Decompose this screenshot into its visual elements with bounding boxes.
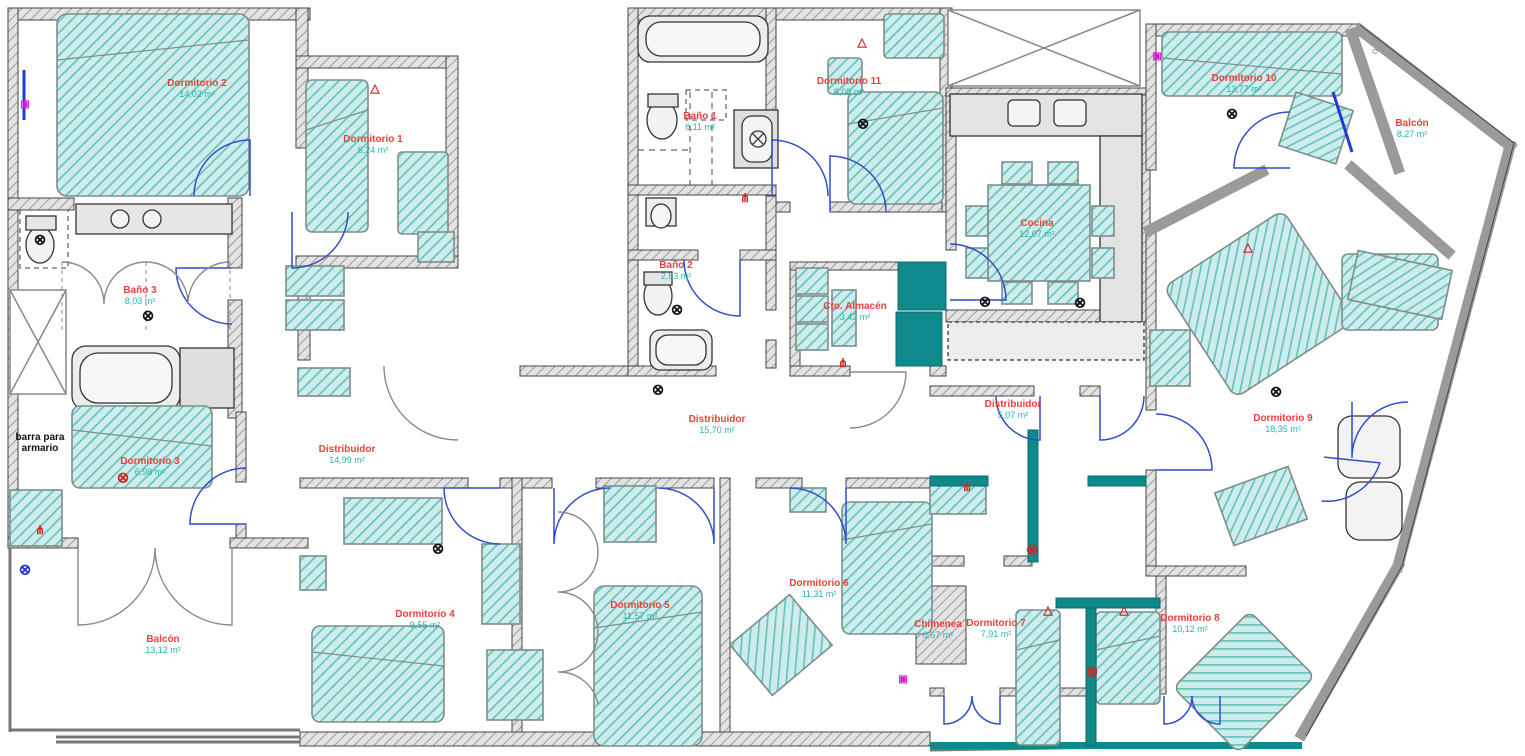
- floor-plan: Dormitorio 214,02 m²Dormitorio 16,24 m²B…: [0, 0, 1525, 756]
- floor-plan-drawing: [0, 0, 1525, 756]
